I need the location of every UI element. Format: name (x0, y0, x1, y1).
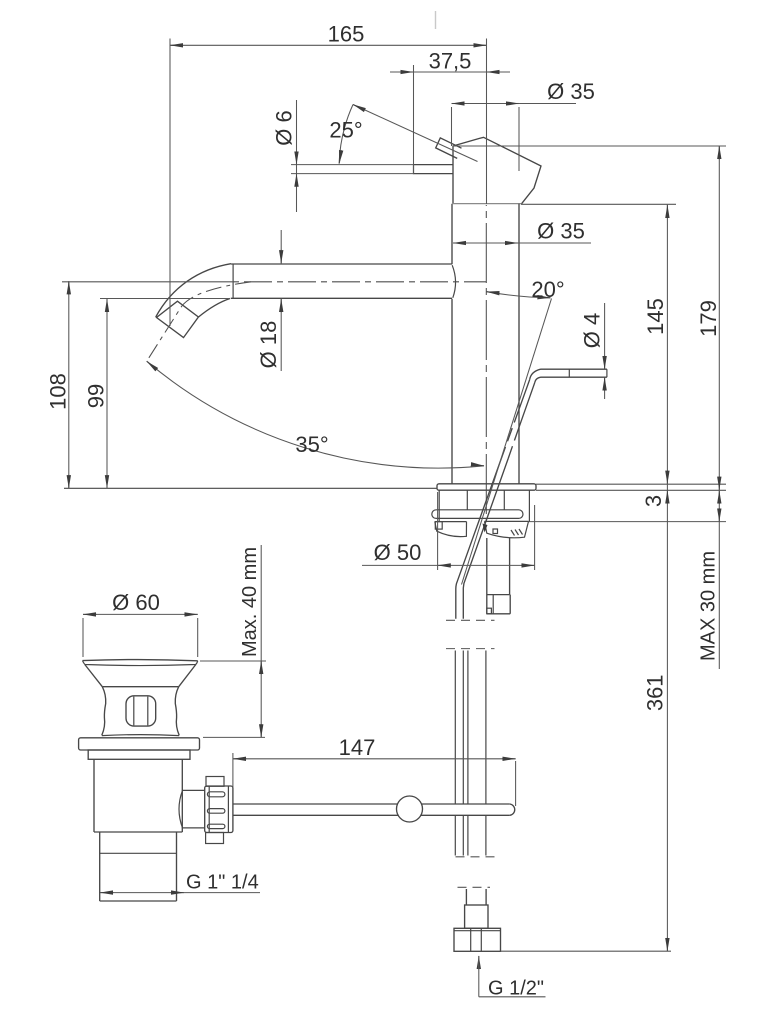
svg-text:G 1/2": G 1/2" (488, 978, 544, 1000)
svg-text:Ø 6: Ø 6 (272, 110, 297, 145)
svg-text:165: 165 (328, 22, 365, 47)
svg-text:147: 147 (339, 735, 376, 760)
svg-text:99: 99 (84, 384, 109, 408)
svg-text:Ø 35: Ø 35 (537, 219, 585, 244)
svg-text:25°: 25° (329, 118, 362, 143)
svg-text:361: 361 (642, 674, 667, 711)
svg-text:Ø 4: Ø 4 (580, 313, 605, 348)
svg-text:35°: 35° (295, 432, 328, 457)
svg-text:MAX 30 mm: MAX 30 mm (697, 551, 719, 661)
svg-text:Ø 60: Ø 60 (112, 590, 160, 615)
svg-text:Ø 50: Ø 50 (374, 540, 422, 565)
svg-text:Ø 18: Ø 18 (256, 321, 281, 369)
svg-text:3: 3 (641, 495, 666, 507)
svg-text:Ø 35: Ø 35 (547, 79, 595, 104)
svg-text:37,5: 37,5 (429, 49, 472, 74)
svg-text:179: 179 (696, 300, 721, 337)
svg-text:20°: 20° (531, 277, 564, 302)
svg-text:145: 145 (643, 298, 668, 335)
svg-text:108: 108 (45, 373, 70, 410)
svg-text:Max. 40 mm: Max. 40 mm (239, 547, 261, 657)
svg-text:G 1" 1/4: G 1" 1/4 (186, 871, 259, 893)
